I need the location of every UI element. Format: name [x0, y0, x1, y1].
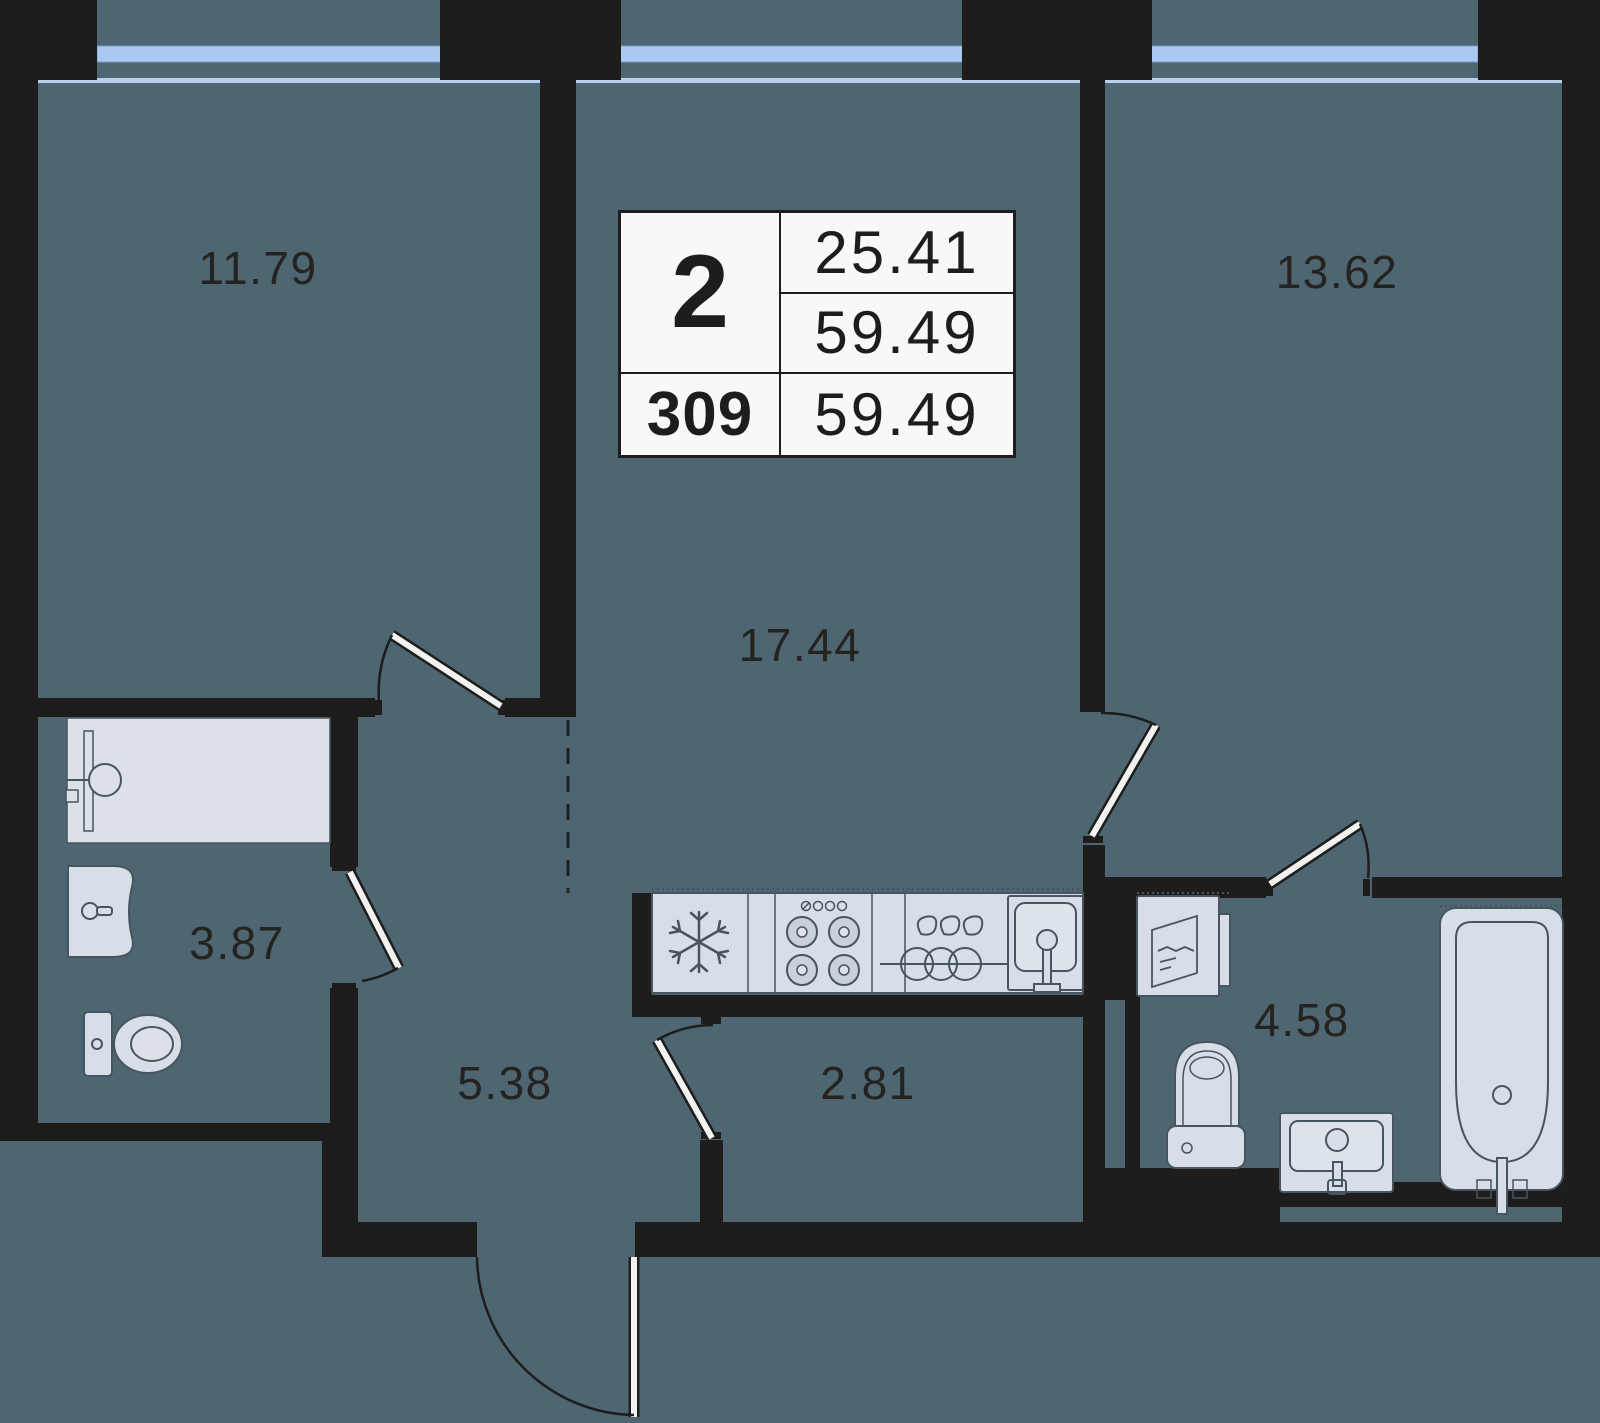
total-area-repeat: 59.49 [781, 374, 1013, 455]
wall-bathroom2-bottom-left [1105, 1168, 1280, 1222]
wall-counter-left [632, 893, 652, 995]
wall-bottom-right [635, 1222, 1600, 1257]
washing-machine [1137, 896, 1219, 996]
toilet-tank [84, 1012, 112, 1076]
wall-corridor-right [1083, 845, 1105, 1222]
rooms-count: 2 [621, 213, 781, 374]
shower-head-icon [89, 764, 121, 796]
sink-tap-icon [82, 903, 98, 919]
toilet-bowl-inner [131, 1027, 173, 1061]
sink2-drain [1333, 1162, 1342, 1186]
wall-partition-1 [540, 80, 576, 717]
wall-bathroom1-right-upper [330, 717, 358, 867]
room-label-bedroom-2: 13.62 [1276, 245, 1399, 299]
room-label-bathroom-2: 4.58 [1254, 993, 1350, 1047]
wall-pier-1 [0, 0, 97, 80]
wall-hall-left [322, 1141, 358, 1222]
wall-bedroom2-bottom-left [1105, 877, 1266, 898]
toilet2-bowl [1175, 1042, 1239, 1126]
wall-hall-corridor [700, 1140, 723, 1222]
room-label-corridor: 2.81 [820, 1056, 916, 1110]
room-label-bedroom-1: 11.79 [198, 241, 317, 295]
wall-right [1562, 0, 1600, 1257]
room-label-bathroom-1: 3.87 [189, 916, 285, 970]
wall-bedroom1-bottom-left [38, 698, 375, 717]
wall-left [0, 0, 38, 1141]
unit-number: 309 [621, 374, 781, 455]
wall-pier-2 [440, 0, 621, 80]
wall-under-counter [632, 995, 1083, 1017]
wall-bathroom1-right-lower [330, 988, 358, 1123]
washing-machine-door [1219, 914, 1230, 986]
sink-tap-handle [97, 907, 112, 915]
wall-bedroom1-bottom-right [505, 698, 545, 717]
toilet2-base [1167, 1126, 1245, 1168]
wall-bedroom2-bottom-right [1372, 877, 1562, 898]
apartment-info-card: 2 25.41 59.49 309 59.49 [618, 210, 1016, 458]
sink2-tap-icon [1326, 1129, 1348, 1151]
kitchen-counter [652, 889, 1083, 993]
bathtub-tap [1497, 1158, 1507, 1214]
wall-bathroom1-bottom [0, 1123, 358, 1141]
shower-bracket [66, 790, 78, 802]
bathtub [1440, 908, 1563, 1190]
window-sill-line [38, 78, 1562, 83]
kitchen-sink [1008, 896, 1083, 992]
window-glass-band [97, 46, 1478, 62]
room-label-kitchen-living: 17.44 [739, 618, 862, 672]
living-area: 25.41 [781, 213, 1013, 294]
wall-bottom-left [322, 1222, 477, 1257]
total-area: 59.49 [781, 294, 1013, 375]
floor-plan: 11.79 13.62 17.44 3.87 5.38 2.81 4.58 2 … [0, 0, 1600, 1423]
room-label-hallway: 5.38 [457, 1056, 553, 1110]
wall-pier-3 [962, 0, 1152, 80]
wall-partition-2 [1080, 80, 1105, 712]
